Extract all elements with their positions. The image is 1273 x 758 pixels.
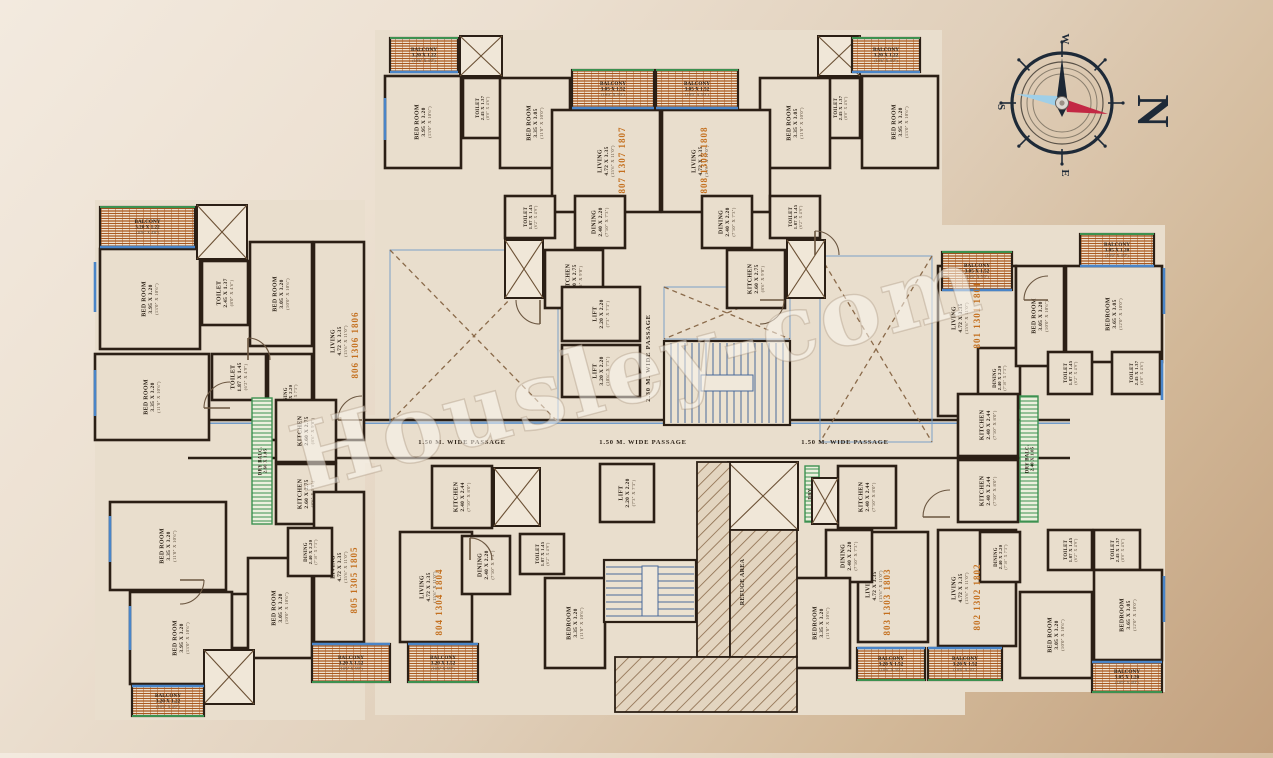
svg-text:2.40 X 2.20: 2.40 X 2.20 [308,539,313,564]
balcony: BALCONY3.20 X 1.22(10'6" X 4'0") [132,686,204,716]
room-label: TOILET1.87 X 1.45(6'2" X 4'9") [231,362,248,391]
flat-number: 807 1307 1807 [617,127,627,194]
svg-text:BED ROOM: BED ROOM [144,379,150,415]
svg-text:(11'0" X 10'0"): (11'0" X 10'0") [799,107,804,139]
svg-text:3.05 X 3.20: 3.05 X 3.20 [1038,301,1044,330]
svg-text:LIVING: LIVING [598,149,604,173]
room-label: BED ROOM3.05 X 3.20(10'0" X 10'6") [273,276,290,312]
svg-text:(10'6" X 4'0"): (10'6" X 4'0") [156,704,180,709]
svg-text:1.87 X 1.45: 1.87 X 1.45 [528,204,533,229]
refuge-area [615,657,797,712]
flat-number: 804 1304 1804 [434,569,444,636]
svg-text:BED ROOM: BED ROOM [892,104,898,140]
balcony-label: BALCONY3.05 X 1.52(10'0" X 5'0") [600,81,626,97]
svg-text:(13'0" X 10'6"): (13'0" X 10'6") [154,283,159,315]
room-label: LIVING4.72 X 3.35(15'6" X 11'0") [598,145,615,177]
room-label: DRY BALC.2.60 X 1.05 [258,447,267,475]
svg-text:BED ROOM: BED ROOM [1048,617,1054,653]
svg-text:(10'6" X 4'0"): (10'6" X 4'0") [136,230,160,235]
svg-text:REFUGE AREA: REFUGE AREA [740,558,746,605]
svg-text:(11'0" X 10'6"): (11'0" X 10'6") [172,530,177,562]
balcony: BALCONY3.05 X 1.20(10'0" X 4'0") [1080,234,1154,266]
compass-needle-red [1064,99,1108,114]
svg-text:(7'10" X 8'0"): (7'10" X 8'0") [871,482,876,511]
svg-text:LIFT: LIFT [619,485,625,500]
svg-text:3.95 X 3.20: 3.95 X 3.20 [898,107,904,136]
svg-text:(7'10" X 8'0"): (7'10" X 8'0") [466,482,471,511]
flat-number: 803 1303 1803 [882,569,892,636]
svg-text:1.87 X 1.45: 1.87 X 1.45 [793,204,798,229]
svg-text:BED ROOM: BED ROOM [787,105,793,141]
room-label: KITCHEN2.40 X 2.44(7'10" X 8'0") [859,481,876,512]
svg-text:3.35 X 3.20: 3.35 X 3.20 [166,531,172,560]
flat-number: 805 1305 1805 [349,547,359,614]
svg-text:3.95 X 3.20: 3.95 X 3.20 [148,284,154,313]
svg-text:4.72 X 3.35: 4.72 X 3.35 [337,552,343,581]
room-label: BED ROOM3.95 X 3.20(13'0" X 10'6") [415,104,432,140]
svg-text:3.95 X 3.20: 3.95 X 3.20 [179,623,185,652]
svg-text:BED ROOM: BED ROOM [273,276,279,312]
svg-text:BED ROOM: BED ROOM [142,281,148,317]
svg-text:(10'0" X 4'0"): (10'0" X 4'0") [1105,253,1129,258]
balcony-label: BALCONY3.05 X 1.20(10'0" X 4'0") [1104,242,1130,258]
room-label: BED ROOM3.05 X 3.20(10'0" X 10'6") [1048,617,1065,653]
room-label: BEDROOM3.35 X 3.20(11'0" X 10'6") [567,606,584,640]
svg-text:2.40 X 2.20: 2.40 X 2.20 [725,207,731,236]
staircase [604,560,696,622]
svg-text:(6'2" X 4'9"): (6'2" X 4'9") [534,205,538,229]
svg-text:BED ROOM: BED ROOM [173,620,179,656]
svg-text:2.40 X 2.20: 2.40 X 2.20 [598,207,604,236]
svg-text:1.87 X 1.45: 1.87 X 1.45 [237,362,243,391]
room-label: KITCHEN2.40 X 2.44(7'10" X 8'0") [980,409,997,440]
duct-shaft [494,468,540,526]
svg-text:KITCHEN: KITCHEN [980,475,986,506]
svg-text:4.72 X 3.35: 4.72 X 3.35 [958,573,964,602]
svg-text:2.40 X 1.05: 2.40 X 1.05 [1029,446,1034,471]
svg-text:(7'10" X 7'3"): (7'10" X 7'3") [1004,544,1008,570]
balcony-label: BALCONY3.20 X 1.52(10'6" X 5'0") [952,656,978,672]
svg-text:3.35 X 3.20: 3.35 X 3.20 [819,608,825,637]
svg-text:TOILET: TOILET [231,365,237,390]
svg-text:1.87 X 1.45: 1.87 X 1.45 [540,541,545,566]
room-label: LIVING4.72 X 3.35(15'6" X 11'0") [331,325,348,357]
room-label: BED ROOM3.35 X 3.05(11'0" X 10'0") [527,105,544,141]
room-label: TOILET2.45 X 1.37(8'0" X 4'6") [1111,537,1125,562]
room-label: TOILET1.87 X 1.45(6'2" X 4'9") [524,204,538,229]
balcony-label: BALCONY3.20 X 1.22(10'6" X 4'0") [155,693,181,709]
room-label: REFUGE AREA [740,558,746,605]
svg-text:2.40 X 2.20: 2.40 X 2.20 [997,365,1002,390]
compass-letter: W [1059,34,1071,45]
svg-text:(12'0" X 10'0"): (12'0" X 10'0") [1132,599,1137,631]
room-label: TOILET1.87 X 1.45(6'2" X 4'9") [1064,537,1078,562]
svg-text:(11'0" X 10'0"): (11'0" X 10'0") [539,107,544,139]
balcony-label: BALCONY3.20 X 1.52(10'6" X 5'0") [430,655,456,671]
svg-text:(10'6" X 5'0"): (10'6" X 5'0") [431,666,455,671]
room-label: DINING2.40 X 2.20(7'10" X 7'3") [304,539,318,565]
room-label: DINING2.40 X 2.20(7'10" X 7'3") [841,541,858,570]
svg-text:(8'0" X 4'6"): (8'0" X 4'6") [229,279,234,306]
balcony-label: BALCONY3.20 X 1.52(10'6" X 5'0") [338,655,364,671]
room-label: TOILET1.87 X 1.45(6'2" X 4'9") [536,541,550,566]
duct-shaft [204,650,254,704]
balcony-label: BALCONY3.20 X 1.22(10'6" X 4'0") [873,47,899,63]
duct-shaft [460,36,502,76]
svg-text:KITCHEN: KITCHEN [859,481,865,512]
balcony-label: BALCONY3.05 X 1.20(10'0" X 4'0") [1114,669,1140,685]
room-label: TOILET1.87 X 1.45(6'2" X 4'9") [789,204,803,229]
svg-text:(11'0" X 10'6"): (11'0" X 10'6") [825,607,830,639]
room-label: BEDROOM3.65 X 3.05(12'0" X 10'0") [1106,297,1123,331]
room-label: BED ROOM3.35 X 3.05(11'0" X 10'0") [787,105,804,141]
svg-text:2.40 X 2.44: 2.40 X 2.44 [986,410,992,439]
duct-shaft [505,240,543,298]
svg-text:(8'0" X 4'6"): (8'0" X 4'6") [1121,538,1125,562]
room-label: BED ROOM3.95 X 3.20(13'0" X 10'6") [142,281,159,317]
svg-text:(10'6" X 4'0"): (10'6" X 4'0") [874,58,898,63]
svg-text:LIVING: LIVING [692,149,698,173]
svg-text:TOILET: TOILET [217,281,223,306]
room-label: TOILET2.45 X 1.37(8'0" X 4'6") [834,95,848,120]
svg-text:BED ROOM: BED ROOM [272,590,278,626]
room-label: BED ROOM3.95 X 3.20(13'0" X 10'6") [173,620,190,656]
svg-text:2.20 X 2.20: 2.20 X 2.20 [625,478,631,507]
svg-text:(7'10" X 8'0"): (7'10" X 8'0") [992,410,997,439]
svg-text:(10'0" X 10'6"): (10'0" X 10'6") [285,278,290,310]
svg-text:DINING: DINING [719,210,725,234]
svg-text:3.05 X 3.20: 3.05 X 3.20 [1054,620,1060,649]
room-label: DINING2.40 X 2.20(7'10" X 7'3") [719,207,736,236]
svg-text:(12'0" X 10'0"): (12'0" X 10'0") [1118,298,1123,330]
svg-text:(6'2" X 4'9"): (6'2" X 4'9") [243,363,248,390]
svg-text:3.95 X 3.20: 3.95 X 3.20 [421,107,427,136]
svg-text:2.40 X 2.44: 2.40 X 2.44 [460,482,466,511]
svg-text:(7'10" X 7'3"): (7'10" X 7'3") [731,207,736,236]
room-label: TOILET2.45 X 1.37(8'0" X 4'6") [217,278,234,307]
balcony: BALCONY3.20 X 1.52(10'6" X 5'0") [312,644,390,682]
svg-text:(8'0" X 4'6"): (8'0" X 4'6") [844,96,848,120]
svg-text:BEDROOM: BEDROOM [813,606,819,640]
svg-text:3.65 X 3.05: 3.65 X 3.05 [1112,299,1118,328]
balcony-label: BALCONY3.20 X 1.22(10'6" X 4'0") [135,219,161,235]
room-label: TOILET1.87 X 1.45(6'2" X 4'9") [1064,360,1078,385]
balcony: BALCONY3.05 X 1.52(10'0" X 5'0") [656,70,738,108]
room-label: DINING2.40 X 2.20(7'10" X 7'3") [592,207,609,236]
room-label: DINING2.40 X 2.20(7'10" X 7'3") [993,365,1007,391]
svg-text:BED ROOM: BED ROOM [527,105,533,141]
svg-text:(10'6" X 5'0"): (10'6" X 5'0") [879,667,903,672]
svg-text:2.40 X 2.20: 2.40 X 2.20 [484,550,490,579]
balcony: BALCONY3.20 X 1.22(10'6" X 4'0") [390,38,458,72]
svg-text:4.72 X 3.35: 4.72 X 3.35 [604,146,610,175]
svg-text:BEDROOM: BEDROOM [567,606,573,640]
svg-text:2.40 X 2.44: 2.40 X 2.44 [986,476,992,505]
svg-text:(10'6" X 5'0"): (10'6" X 5'0") [953,667,977,672]
svg-text:(10'0" X 4'0"): (10'0" X 4'0") [1115,680,1139,685]
svg-text:2.60 X 1.05: 2.60 X 1.05 [262,448,267,473]
room-label: KITCHEN2.40 X 2.44(7'10" X 8'0") [980,475,997,506]
svg-text:(6'2" X 4'9"): (6'2" X 4'9") [1074,538,1078,562]
room-label: BED ROOM3.95 X 3.20(13'0" X 10'6") [892,104,909,140]
room-label: KITCHEN2.40 X 2.44(7'10" X 8'0") [454,481,471,512]
compass-icon: WSEN [995,34,1179,177]
svg-text:(11'0" X 10'6"): (11'0" X 10'6") [156,381,161,413]
svg-text:2.45 X 1.37: 2.45 X 1.37 [1115,537,1120,562]
floor-plan: BED ROOM3.95 X 3.20(13'0" X 10'6")TOILET… [0,0,1273,753]
balcony-label: BALCONY3.05 X 1.52(10'0" X 5'0") [684,81,710,97]
room-label: BEDROOM3.35 X 3.20(11'0" X 10'6") [813,606,830,640]
svg-text:(7'10" X 7'3"): (7'10" X 7'3") [490,550,495,579]
svg-text:2.45 X 1.37: 2.45 X 1.37 [838,95,843,120]
balcony: BALCONY3.20 X 1.22(10'6" X 4'0") [852,38,920,72]
svg-text:(13'0" X 10'6"): (13'0" X 10'6") [904,106,909,138]
svg-text:BED ROOM: BED ROOM [1032,298,1038,334]
svg-text:(15'6" X 11'0"): (15'6" X 11'0") [343,551,348,583]
svg-text:(7'3" X 7'3"): (7'3" X 7'3") [631,479,636,506]
balcony-label: BALCONY3.20 X 1.52(10'6" X 5'0") [878,656,904,672]
svg-text:BEDROOM: BEDROOM [1120,598,1126,632]
svg-text:(6'2" X 4'9"): (6'2" X 4'9") [1074,361,1078,385]
flat-number: 802 1302 1802 [972,564,982,631]
room-label: DINING2.40 X 2.20(7'10" X 7'3") [994,544,1008,570]
compass-letter: S [995,104,1007,110]
svg-text:(10'6" X 5'0"): (10'6" X 5'0") [339,666,363,671]
svg-text:(10'0" X 10'6"): (10'0" X 10'6") [1060,619,1065,651]
svg-text:1.87 X 1.45: 1.87 X 1.45 [1068,537,1073,562]
svg-text:(7'10" X 8'0"): (7'10" X 8'0") [992,476,997,505]
svg-text:(13'0" X 10'6"): (13'0" X 10'6") [427,106,432,138]
svg-text:(15'6" X 11'0"): (15'6" X 11'0") [343,325,348,357]
svg-text:(8'0" X 4'6"): (8'0" X 4'6") [486,96,490,120]
room-label: BED ROOM3.05 X 3.20(10'0" X 10'6") [272,590,289,626]
room-label: DRY BALC.2.40 X 1.05 [1025,445,1034,473]
svg-text:2.40 X 2.20: 2.40 X 2.20 [847,541,853,570]
svg-text:2.45 X 1.37: 2.45 X 1.37 [223,278,229,307]
compass-north-letter: N [1128,94,1179,127]
svg-text:(10'0" X 10'6"): (10'0" X 10'6") [284,592,289,624]
svg-text:3.05 X 3.20: 3.05 X 3.20 [278,593,284,622]
svg-text:3.35 X 3.20: 3.35 X 3.20 [573,608,579,637]
svg-text:3.05 X 3.20: 3.05 X 3.20 [279,279,285,308]
compass-needle-blue [1016,94,1060,107]
room-label: BED ROOM3.35 X 3.20(11'0" X 10'6") [160,528,177,564]
balcony: BALCONY3.20 X 1.52(10'6" X 5'0") [928,648,1002,680]
svg-text:KITCHEN: KITCHEN [454,481,460,512]
svg-text:(10'0" X 5'0"): (10'0" X 5'0") [601,92,625,97]
svg-text:LIVING: LIVING [331,329,337,353]
flat-number: 808 1308 1808 [699,127,709,194]
svg-text:(6'2" X 4'9"): (6'2" X 4'9") [799,205,803,229]
svg-text:(13'0" X 10'6"): (13'0" X 10'6") [185,622,190,654]
room-label: BED ROOM3.35 X 3.20(11'0" X 10'6") [144,379,161,415]
svg-text:BED ROOM: BED ROOM [415,104,421,140]
svg-text:(8'0" X 4'6"): (8'0" X 4'6") [1140,361,1144,385]
svg-text:3.65 X 3.05: 3.65 X 3.05 [1126,600,1132,629]
svg-text:(7'10" X 7'3"): (7'10" X 7'3") [604,207,609,236]
balcony-label: BALCONY3.20 X 1.22(10'6" X 4'0") [411,47,437,63]
svg-text:(7'10" X 7'3"): (7'10" X 7'3") [314,539,318,565]
svg-text:(11'0" X 10'6"): (11'0" X 10'6") [579,607,584,639]
balcony: BALCONY3.20 X 1.52(10'6" X 5'0") [408,644,478,682]
duct-shaft [812,478,838,524]
svg-text:DINING: DINING [592,210,598,234]
svg-text:BEDROOM: BEDROOM [1106,297,1112,331]
svg-text:1.87 X 1.45: 1.87 X 1.45 [1068,360,1073,385]
svg-text:(10'0" X 10'6"): (10'0" X 10'6") [1044,300,1049,332]
room-label: LIVING4.72 X 3.35(15'6" X 11'0") [952,572,969,604]
svg-text:4.72 X 3.35: 4.72 X 3.35 [426,572,432,601]
floor-plan-canvas: BED ROOM3.95 X 3.20(13'0" X 10'6")TOILET… [0,0,1273,753]
svg-text:2.40 X 2.44: 2.40 X 2.44 [865,482,871,511]
svg-text:2.45 X 1.37: 2.45 X 1.37 [1134,360,1139,385]
svg-text:(6'2" X 4'9"): (6'2" X 4'9") [546,542,550,566]
svg-text:2.40 X 2.20: 2.40 X 2.20 [998,544,1003,569]
svg-text:3.35 X 3.05: 3.35 X 3.05 [793,108,799,137]
balcony: BALCONY3.20 X 1.52(10'6" X 5'0") [857,648,925,680]
balcony: BALCONY3.05 X 1.20(10'0" X 4'0") [1092,662,1162,692]
compass-letter: E [1059,169,1071,176]
svg-text:(10'0" X 5'0"): (10'0" X 5'0") [685,92,709,97]
balcony: BALCONY3.05 X 1.52(10'0" X 5'0") [572,70,654,108]
svg-text:BED ROOM: BED ROOM [160,528,166,564]
refuge-area [697,462,730,657]
svg-text:(15'6" X 11'0"): (15'6" X 11'0") [964,572,969,604]
room-label: TOILET2.45 X 1.37(8'0" X 4'6") [476,95,490,120]
svg-text:4.72 X 3.35: 4.72 X 3.35 [337,326,343,355]
svg-text:(7'10" X 7'3"): (7'10" X 7'3") [853,541,858,570]
room-label: BEDROOM3.65 X 3.05(12'0" X 10'0") [1120,598,1137,632]
duct-shaft [728,462,798,530]
passage-label: 1.50 M. WIDE PASSAGE [801,439,888,446]
duct-shaft [197,205,247,259]
svg-text:3.35 X 3.20: 3.35 X 3.20 [150,382,156,411]
room-label: TOILET2.45 X 1.37(8'0" X 4'6") [1130,360,1144,385]
passage-label: 1.50 M. WIDE PASSAGE [599,439,686,446]
svg-text:(10'6" X 4'0"): (10'6" X 4'0") [412,58,436,63]
svg-text:LIVING: LIVING [952,576,958,600]
room-label: BED ROOM3.05 X 3.20(10'0" X 10'6") [1032,298,1049,334]
svg-text:(7'10" X 7'3"): (7'10" X 7'3") [1003,365,1007,391]
svg-text:DINING: DINING [478,553,484,577]
balcony: BALCONY3.20 X 1.22(10'6" X 4'0") [100,207,195,247]
room-label: DINING2.40 X 2.20(7'10" X 7'3") [478,550,495,579]
svg-text:LIVING: LIVING [420,575,426,599]
flat-number: 806 1306 1806 [350,312,360,379]
svg-text:LIFT: LIFT [593,306,599,321]
svg-text:3.35 X 3.05: 3.35 X 3.05 [533,108,539,137]
svg-text:KITCHEN: KITCHEN [980,409,986,440]
svg-text:2.45 X 1.37: 2.45 X 1.37 [480,95,485,120]
svg-text:DINING: DINING [841,544,847,568]
svg-text:(15'6" X 11'0"): (15'6" X 11'0") [610,145,615,177]
